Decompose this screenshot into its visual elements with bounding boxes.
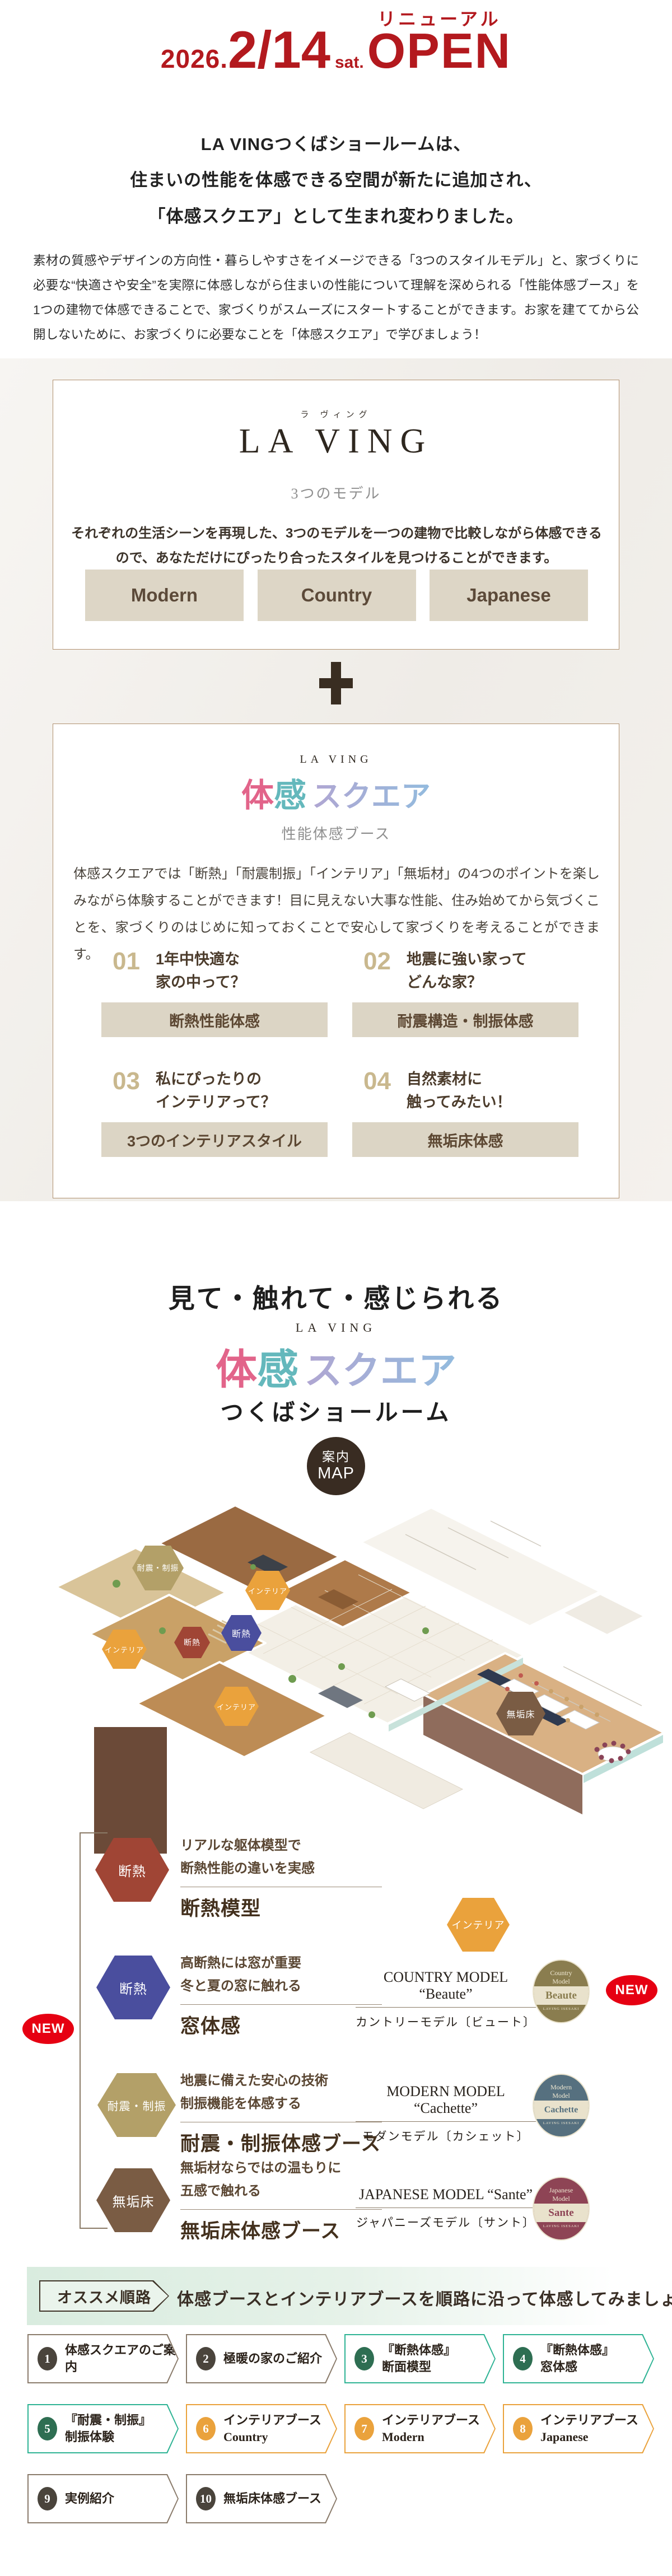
route-step-10: 10 無垢床体感ブース [186, 2474, 337, 2523]
models-subtitle: 3つのモデル [53, 482, 619, 503]
japanese-button[interactable]: Japanese [430, 570, 588, 621]
route-step-7: 7 インテリアブース Modern [344, 2404, 496, 2453]
route-step-6: 6 インテリアブース Country [186, 2404, 337, 2453]
badge-top2: Model [552, 1977, 570, 1985]
step-label-line: 『断熱体感』 [382, 2343, 456, 2357]
taikan-square-title: 体感スクエア [53, 769, 619, 816]
model-title-jp: モダンモデル〔カシェット〕 [356, 2127, 536, 2144]
step-number: 5 [38, 2417, 57, 2440]
point-01-question-line2: 家の中って？ [156, 974, 246, 991]
step-number: 9 [38, 2487, 57, 2510]
step-label-line: 制振体験 [65, 2430, 114, 2444]
divider [356, 2007, 536, 2008]
model-title: JAPANESE MODEL “Sante” [356, 2186, 536, 2203]
point-01-label: 断熱性能体感 [101, 1002, 328, 1037]
step-label-line: 体感スクエアのご案内 [65, 2343, 176, 2374]
point-03-question-line2: インテリアって？ [156, 1094, 276, 1110]
japanese-model-badge: Japanese Model Sante LAVING ISESAKI [533, 2177, 590, 2241]
route-step-8: 8 インテリアブース Japanese [503, 2404, 654, 2453]
divider [356, 2121, 536, 2122]
step-label-line: Country [223, 2430, 268, 2444]
intro-paragraph: 素材の質感やデザインの方向性・暮らしやすさをイメージできる「3つのスタイルモデル… [33, 249, 639, 347]
step-number: 2 [196, 2347, 216, 2370]
step-label-line: インテリアブース [382, 2413, 480, 2427]
legend-desc: リアルな躯体模型で [180, 1838, 301, 1853]
route-step-1: 1 体感スクエアのご案内 [27, 2334, 179, 2383]
route-step-9: 9 実例紹介 [27, 2474, 179, 2523]
divider [180, 1887, 382, 1887]
point-02-number: 02 [363, 948, 391, 975]
badge-top: Modern [550, 2083, 572, 2091]
step-number: 10 [196, 2487, 216, 2510]
legend-item-dannetsu-model: リアルな躯体模型で 断熱性能の違いを実感 断熱模型 [180, 1835, 404, 1921]
guide-map-line1: 案内 [322, 1449, 350, 1464]
legend-bracket [80, 1832, 108, 2229]
point-04-question-line2: 触ってみたい！ [407, 1094, 512, 1110]
laving-logo-small: LA VING [53, 753, 619, 766]
new-badge-ray [38, 2006, 43, 2012]
showroom-title-kan: 感 [257, 1346, 298, 1393]
badge-top2: Model [552, 2195, 570, 2202]
guide-map-badge: 案内 MAP [307, 1437, 365, 1495]
legend-hex-interior: インテリア [447, 1898, 510, 1952]
legend-desc: 制振機能を体感する [180, 2097, 301, 2111]
showroom-title: 体感スクエア [0, 1336, 672, 1396]
legend-desc: 無垢材ならではの温もりに [180, 2161, 341, 2176]
model-entry-modern: MODERN MODEL “Cachette” モダンモデル〔カシェット〕 [356, 2083, 536, 2144]
open-day: sat. [335, 53, 364, 72]
badge-bottom: LAVING ISESAKI [534, 2005, 589, 2022]
point-04-question-line1: 自然素材に [407, 1071, 482, 1088]
open-year: 2026. [161, 44, 228, 74]
badge-top: Country [550, 1969, 572, 1977]
showroom-title-tai: 体 [216, 1346, 257, 1393]
badge-name: Sante [534, 2204, 589, 2222]
new-badge-ray [638, 1967, 643, 1973]
country-model-badge: Country Model Beaute LAVING ISESAKI [533, 1959, 590, 2023]
legend-desc: 冬と夏の窓に触れる [180, 1979, 301, 1994]
step-label-line: 窓体感 [540, 2360, 577, 2374]
point-01-number: 01 [113, 948, 140, 975]
model-title: COUNTRY MODEL “Beaute” [356, 1969, 536, 2003]
route-heading-band: オススメ順路 体感ブースとインテリアブースを順路に沿って体感してみましょう [27, 2267, 613, 2325]
divider [356, 2208, 536, 2208]
showroom-title-square: スクエア [304, 1350, 456, 1392]
step-label-line: 無垢床体感ブース [223, 2491, 321, 2505]
modern-model-badge: Modern Model Cachette LAVING ISESAKI [533, 2074, 590, 2138]
renewal-label: リニューアル [377, 5, 501, 31]
landing-page: 2026. 2/14 sat. リニューアル OPEN LA VINGつくばショ… [0, 0, 672, 2576]
model-entry-country: COUNTRY MODEL “Beaute” カントリーモデル〔ビュート〕 [356, 1969, 536, 2030]
route-step-5: 5 『耐震・制振』 制振体験 [27, 2404, 179, 2453]
legend-hex-taishin: 耐震・制振 [97, 2073, 176, 2137]
divider [180, 2122, 382, 2122]
open-date-header: 2026. 2/14 sat. リニューアル OPEN [0, 24, 672, 76]
new-badge-ray [622, 1967, 626, 1973]
new-badge-label: NEW [615, 1982, 648, 1998]
new-badge-country: NEW [606, 1975, 657, 2005]
legend-desc: 五感で触れる [180, 2184, 261, 2199]
step-label-line: Modern [382, 2430, 424, 2444]
model-title: MODERN MODEL “Cachette” [356, 2083, 536, 2117]
badge-bottom: LAVING ISESAKI [534, 2119, 589, 2136]
showroom-map: 耐震・制振 インテリア 断熱 断熱 インテリア インテリア 無垢床 [0, 1501, 672, 1865]
point-03: 03 私にぴったりの インテリアって？ 3つのインテリアスタイル [101, 1068, 328, 1157]
badge-name: Cachette [534, 2101, 589, 2119]
route-step-4: 4 『断熱体感』 窓体感 [503, 2334, 654, 2383]
showroom-catchcopy: 見て・触れて・感じられる [0, 1277, 672, 1315]
step-label-line: インテリアブース [223, 2413, 321, 2427]
laving-furigana: ラ ヴィング [53, 408, 619, 420]
step-label-line: 『断熱体感』 [540, 2343, 614, 2357]
step-number: 4 [513, 2347, 533, 2370]
step-number: 3 [354, 2347, 374, 2370]
point-02-question-line2: どんな家？ [407, 974, 482, 991]
divider [180, 2209, 382, 2210]
step-label-line: 極暖の家のご紹介 [223, 2351, 322, 2365]
badge-name: Beaute [534, 1986, 589, 2005]
legend-desc: 地震に備えた安心の技術 [180, 2074, 328, 2088]
step-label-line: Japanese [540, 2430, 589, 2444]
new-badge-ray [48, 2006, 49, 2012]
isometric-floorplan-illustration [0, 1501, 672, 1865]
new-badge-ray [55, 2006, 59, 2012]
modern-button[interactable]: Modern [85, 570, 244, 621]
plus-icon [319, 662, 353, 704]
laving-logo: LA VING [53, 422, 619, 461]
headline-line2: 住まいの性能を体感できる空間が新たに追加され、 [0, 162, 672, 198]
guide-map-line2: MAP [318, 1464, 354, 1483]
step-number: 1 [38, 2347, 57, 2370]
title-char-kan: 感 [274, 777, 306, 814]
route-step-3: 3 『断熱体感』 断面模型 [344, 2334, 496, 2383]
point-04-label: 無垢床体感 [352, 1122, 578, 1157]
step-number: 6 [196, 2417, 216, 2440]
taikan-square-box: LA VING 体感スクエア 性能体感ブース 体感スクエアでは「断熱」「耐震制振… [53, 724, 619, 1198]
point-01-question-line1: 1年中快適な [156, 951, 240, 968]
route-heading: 体感ブースとインテリアブースを順路に沿って体感してみましょう [177, 2285, 672, 2310]
badge-top: Japanese [549, 2186, 573, 2194]
route-tag: オススメ順路 [39, 2280, 169, 2312]
new-badge-label: NEW [32, 2021, 65, 2037]
badge-top2: Model [552, 2092, 570, 2099]
step-label-line: 実例紹介 [65, 2491, 114, 2505]
models-description: それぞれの生活シーンを再現した、3つのモデルを一つの建物で比較しながら体感できる… [68, 521, 605, 571]
point-03-question-line1: 私にぴったりの [156, 1071, 262, 1088]
step-label-line: インテリアブース [540, 2413, 638, 2427]
point-03-label: 3つのインテリアスタイル [101, 1122, 328, 1157]
step-label-line: 『耐震・制振』 [65, 2413, 151, 2427]
title-square: スクエア [312, 780, 431, 813]
step-number: 8 [513, 2417, 533, 2440]
model-entry-japanese: JAPANESE MODEL “Sante” ジャパニーズモデル〔サント〕 [356, 2186, 536, 2230]
point-01: 01 1年中快適な 家の中って？ 断熱性能体感 [101, 948, 328, 1037]
headline-line1: LA VINGつくばショールームは、 [0, 127, 672, 162]
headline-line3: 「体感スクエア」として生まれ変わりました。 [0, 199, 672, 235]
point-02-label: 耐震構造・制振体感 [352, 1002, 578, 1037]
new-badge-window: NEW [22, 2014, 74, 2044]
route-tag-label: オススメ順路 [40, 2281, 168, 2311]
legend-title: 断熱模型 [180, 1893, 404, 1921]
showroom-laving-logo: LA VING [0, 1320, 672, 1335]
country-button[interactable]: Country [258, 570, 416, 621]
style-buttons: Modern Country Japanese [85, 570, 588, 621]
point-02: 02 地震に強い家って どんな家？ 耐震構造・制振体感 [352, 948, 578, 1037]
point-04: 04 自然素材に 触ってみたい！ 無垢床体感 [352, 1068, 578, 1157]
route-step-2: 2 極暖の家のご紹介 [186, 2334, 337, 2383]
legend-desc: 断熱性能の違いを実感 [180, 1861, 315, 1876]
badge-bottom: LAVING ISESAKI [534, 2222, 589, 2239]
models-box: ラ ヴィング LA VING 3つのモデル それぞれの生活シーンを再現した、3つ… [53, 380, 619, 650]
new-badge-ray [631, 1967, 633, 1973]
open-label: OPEN [367, 23, 511, 78]
step-label-line: 断面模型 [382, 2360, 431, 2374]
taikan-subtitle: 性能体感ブース [53, 823, 619, 843]
legend-desc: 高断熱には窓が重要 [180, 1956, 301, 1971]
model-title-jp: ジャパニーズモデル〔サント〕 [356, 2214, 536, 2230]
point-04-number: 04 [363, 1068, 391, 1095]
point-02-question-line1: 地震に強い家って [407, 951, 527, 968]
showroom-subtitle: つくばショールーム [0, 1393, 672, 1427]
model-title-jp: カントリーモデル〔ビュート〕 [356, 2013, 536, 2030]
step-number: 7 [354, 2417, 374, 2440]
divider [180, 2004, 382, 2005]
title-char-tai: 体 [241, 777, 274, 814]
point-03-number: 03 [113, 1068, 140, 1095]
open-date: 2/14 [228, 24, 330, 76]
headline: LA VINGつくばショールームは、 住まいの性能を体感できる空間が新たに追加さ… [0, 127, 672, 235]
